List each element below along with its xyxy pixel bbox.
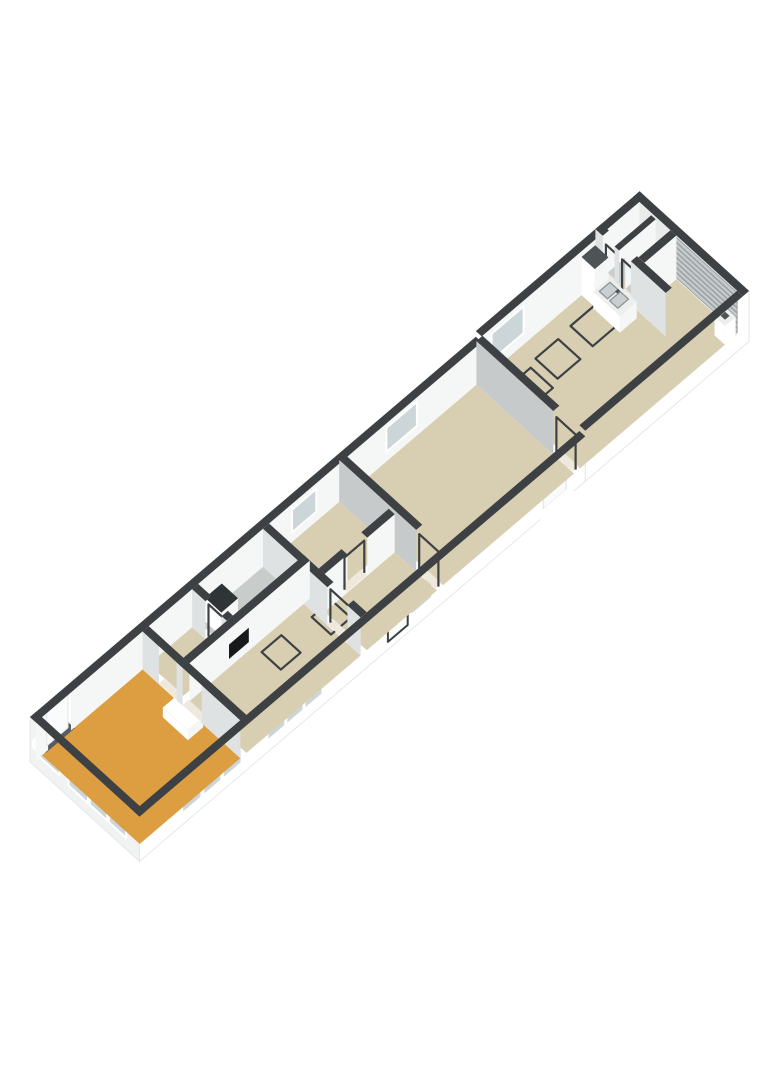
floorplan-canvas [0,0,763,1080]
floorplan-scene [30,191,749,861]
living-cross-wall-seg-face [177,662,183,705]
floorplan-svg [0,0,763,1080]
